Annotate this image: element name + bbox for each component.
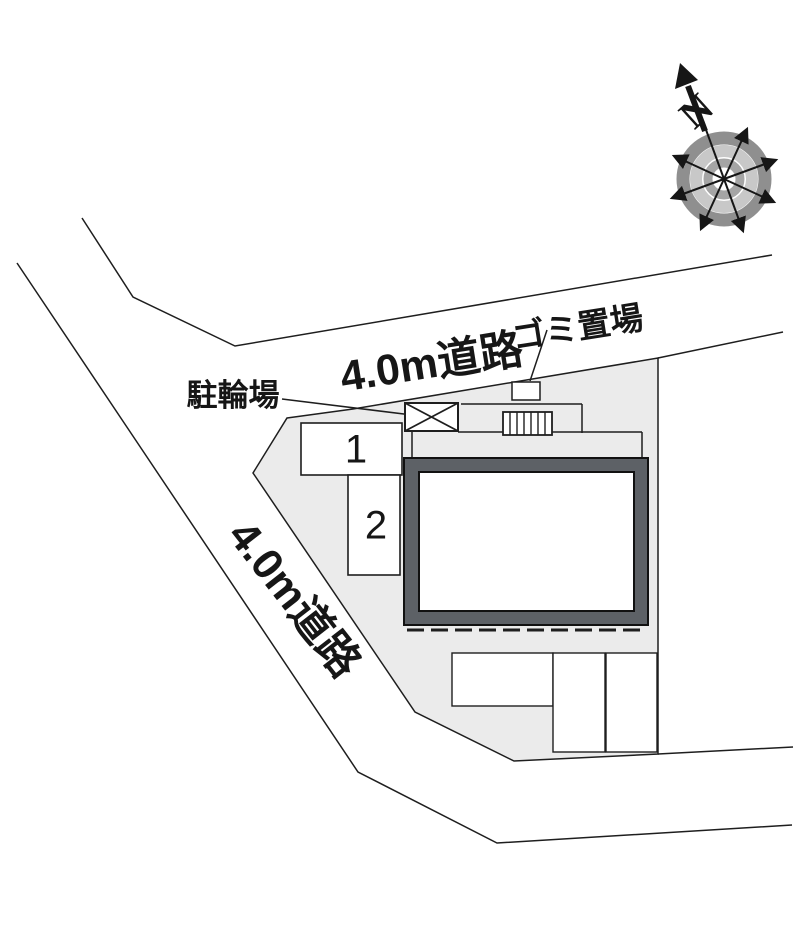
- parking-space-1-label: 1: [345, 428, 367, 472]
- north-label: N: [670, 84, 722, 137]
- bicycle-parking-box: [405, 403, 458, 431]
- yard-block-1: [452, 653, 553, 706]
- road-bottom-upper-edge-extension: [658, 747, 793, 754]
- road-top-upper-edge: [82, 218, 772, 346]
- building-interior: [419, 472, 634, 611]
- site-plan-drawing: N 4.0m道路 ゴミ置場 駐輪場 4.0m道路 1 2: [0, 0, 800, 942]
- site-plan: N 4.0m道路 ゴミ置場 駐輪場 4.0m道路 1 2: [0, 0, 800, 942]
- yard-block-3: [606, 653, 657, 752]
- bicycle-label: 駐輪場: [187, 378, 280, 413]
- road-top-lower-edge-extension: [658, 332, 783, 358]
- entrance-steps: [503, 412, 552, 435]
- yard-block-2: [553, 653, 605, 752]
- garbage-box: [512, 382, 540, 400]
- garbage-label: ゴミ置場: [509, 299, 645, 356]
- parking-space-2-label: 2: [365, 504, 387, 548]
- building: [404, 458, 648, 625]
- compass-rose: N: [670, 63, 776, 231]
